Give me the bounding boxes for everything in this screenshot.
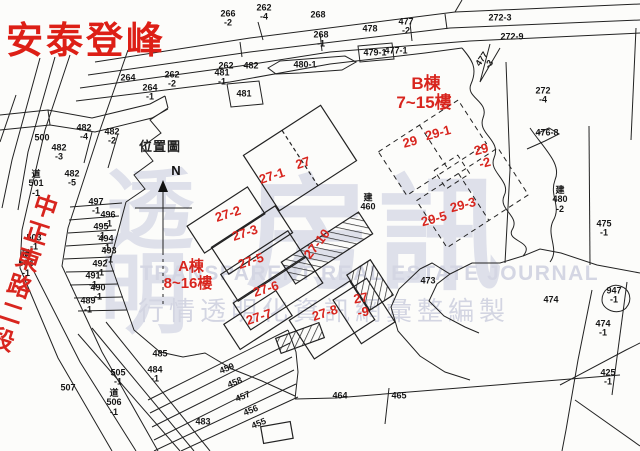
parcel-label: 500 <box>34 133 49 142</box>
parcel-label: 266 -2 <box>220 10 235 29</box>
parcel-label: 483 <box>195 417 210 426</box>
parcel-label: 482 <box>243 61 258 70</box>
parcel-label: 474 <box>543 295 558 304</box>
parcel-label: 272-9 <box>500 32 523 41</box>
parcel-label: 482 -3 <box>51 144 66 163</box>
parcel-label: 268 -1 <box>313 31 328 50</box>
parcel-label: 507 <box>60 383 75 392</box>
parcel-label: 476-8 <box>535 128 558 137</box>
parcel-label: 947 -1 <box>606 287 621 306</box>
block-b-name: B棟 <box>411 75 440 93</box>
block-a-floors: 8~16樓 <box>164 276 213 292</box>
inset-title: 位置圖 <box>139 140 181 154</box>
parcel-label: 505 -1 <box>110 369 125 388</box>
parcel-label: 482 -4 <box>76 124 91 143</box>
parcel-label: 477 -2 <box>398 18 413 37</box>
parcel-label: 489 -1 <box>80 297 95 316</box>
parcel-label: 道 506 -1 <box>106 389 121 417</box>
parcel-label: 479-1 <box>363 48 386 57</box>
parcel-label: 484 -1 <box>147 366 162 385</box>
parcel-label: 477-1 <box>384 46 407 55</box>
parcel-label: 480-1 <box>293 60 316 69</box>
parcel-label: 464 <box>332 391 347 400</box>
parcel-label: 481 <box>236 89 251 98</box>
map-title: 安泰登峰 <box>6 10 166 64</box>
parcel-label: 272 -4 <box>535 87 550 106</box>
parcel-label: 481 -1 <box>214 69 229 88</box>
parcel-label: 425 -1 <box>600 369 615 388</box>
parcel-label: 482 -2 <box>104 128 119 147</box>
parcel-label: 478 <box>362 24 377 33</box>
parcel-label: 264 -1 <box>142 84 157 103</box>
north-label: N <box>171 164 180 178</box>
parcel-label: 262 -2 <box>164 71 179 90</box>
block-b-floors: 7~15樓 <box>396 94 451 112</box>
parcel-label: 473 <box>420 276 435 285</box>
parcel-label: 474 -1 <box>595 320 610 339</box>
parcel-label: 272-3 <box>488 13 511 22</box>
block-a-name: A棟 <box>178 259 204 275</box>
parcel-label: 465 <box>391 391 406 400</box>
parcel-label: 482 -5 <box>64 170 79 189</box>
parcel-label: 建 460 <box>360 194 375 213</box>
parcel-label: 建 480 -2 <box>552 186 567 214</box>
cadastral-map: 透 明 房訊 TRANSPARENT REAL ESTATE JOURNAL 行… <box>0 0 640 451</box>
parcel-label: 262 -4 <box>256 4 271 23</box>
parcel-label: 485 <box>152 349 167 358</box>
parcel-label: 475 -1 <box>596 220 611 239</box>
parcel-label: 268 <box>310 10 325 19</box>
parcel-label: 264 <box>120 73 135 82</box>
